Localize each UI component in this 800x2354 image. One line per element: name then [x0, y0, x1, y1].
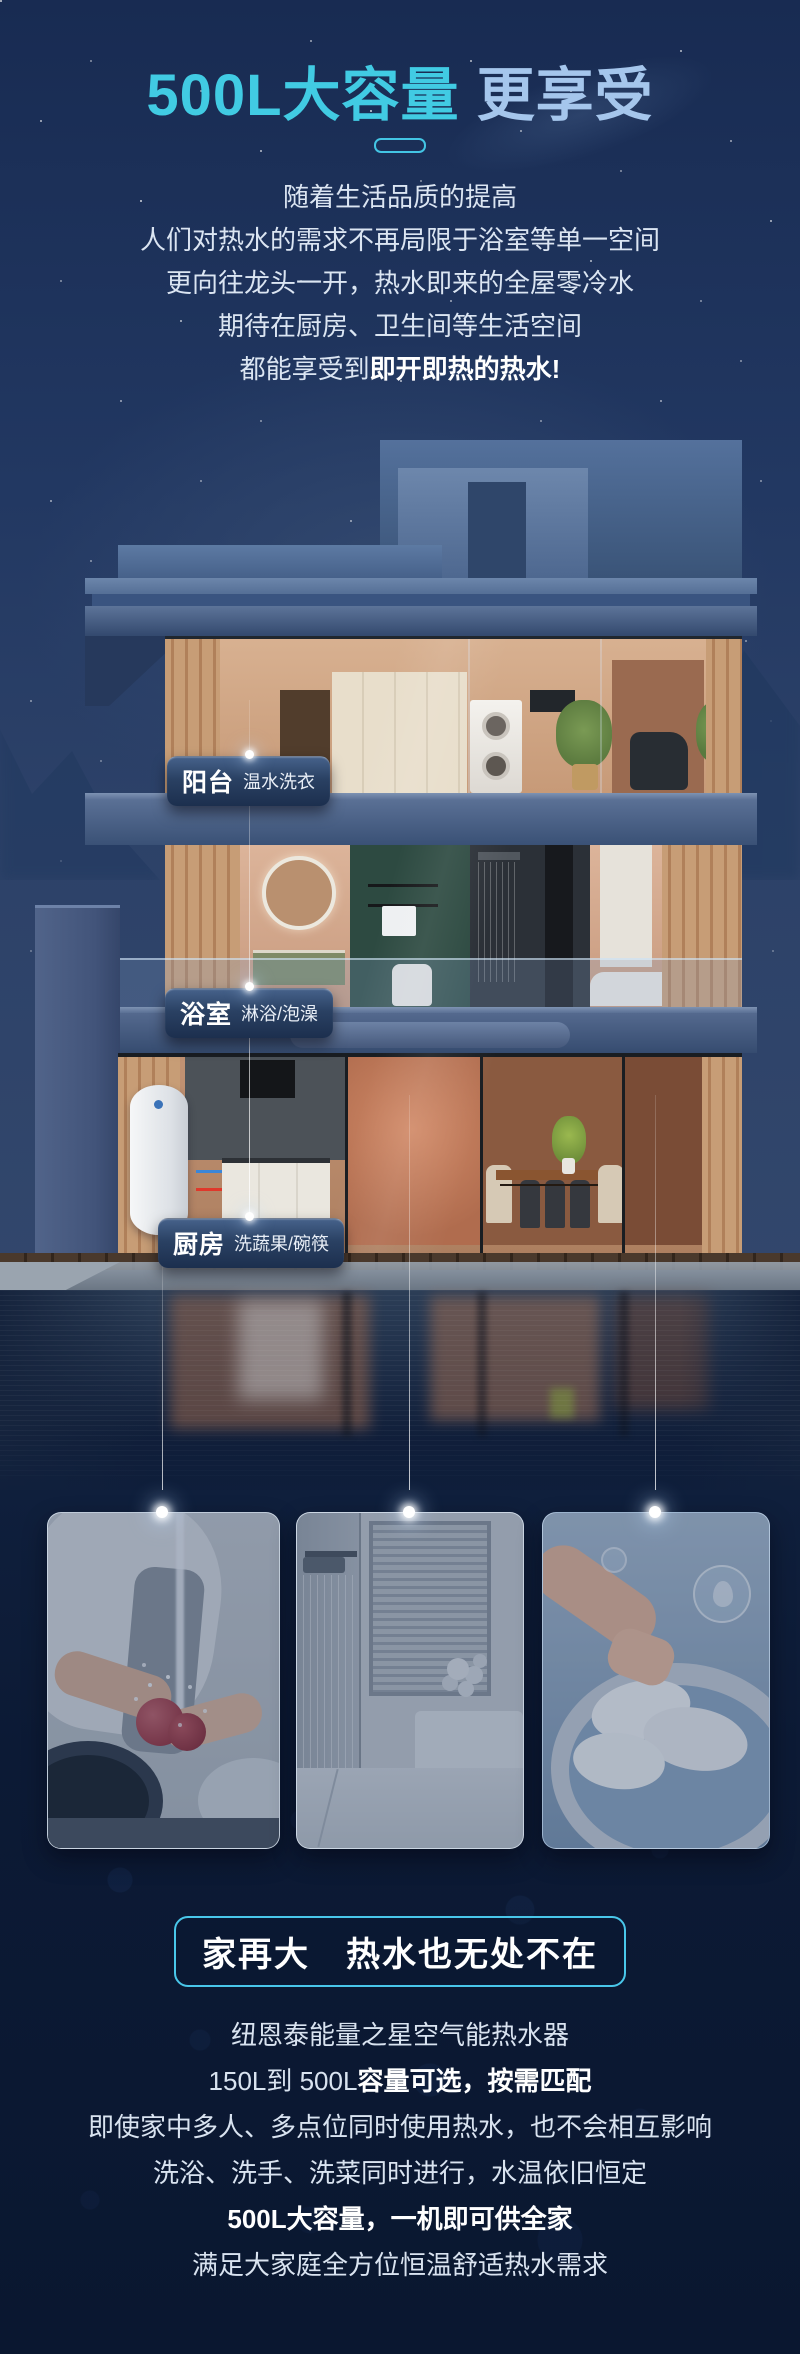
- card-tint: [297, 1513, 523, 1848]
- card1-connector-line: [162, 1262, 163, 1514]
- card-tint: [48, 1513, 279, 1848]
- title-highlight: 500L大容量: [146, 63, 459, 128]
- outro-line: 500L大容量，一机即可供全家: [0, 2196, 800, 2242]
- outro-line: 纽恩泰能量之星空气能热水器: [0, 2012, 800, 2058]
- title-rest: 更享受: [460, 63, 654, 128]
- roof-door: [468, 482, 526, 578]
- intro-line: 更向往龙头一开，热水即来的全屋零冷水: [0, 262, 800, 305]
- pool-coping: [0, 1262, 800, 1292]
- label-glow-dot: [245, 1212, 254, 1221]
- outro-title-box: 家再大 热水也无处不在: [174, 1916, 626, 1987]
- roof-cornice-fascia: [85, 606, 757, 636]
- label-bathroom-title: 浴室: [180, 995, 232, 1031]
- card-glow-dot: [649, 1506, 661, 1518]
- label-kitchen-subtitle: 洗蔬果/碗筷: [234, 1230, 329, 1256]
- outro-line: 150L到 500L容量可选，按需匹配: [0, 2058, 800, 2104]
- label-bathroom: 浴室 淋浴/泡澡: [165, 988, 333, 1038]
- intro-line: 随着生活品质的提高: [0, 176, 800, 219]
- outro-title: 家再大 热水也无处不在: [202, 1936, 598, 1974]
- card3-connector-line: [655, 1095, 656, 1514]
- divider-pill: [374, 138, 426, 153]
- label-bathroom-subtitle: 淋浴/泡澡: [241, 1000, 318, 1026]
- label-balcony-subtitle: 温水洗衣: [243, 768, 315, 794]
- intro-line: 都能享受到即开即热的热水!: [0, 348, 800, 391]
- promo-page: 500L大容量 更享受 随着生活品质的提高 人们对热水的需求不再局限于浴室等单一…: [0, 0, 800, 2354]
- card2-connector-line: [409, 1095, 410, 1514]
- card-glow-dot: [156, 1506, 168, 1518]
- outro-line: 洗浴、洗手、洗菜同时进行，水温依旧恒定: [0, 2150, 800, 2196]
- label-balcony-title: 阳台: [182, 763, 234, 799]
- label-glow-dot: [245, 750, 254, 759]
- photo-card-shower: [296, 1512, 524, 1849]
- photo-card-washing-vegetables: [47, 1512, 280, 1849]
- stars: [0, 0, 2, 2]
- card-glow-dot: [403, 1506, 415, 1518]
- balcony-slab: [85, 800, 757, 845]
- label-kitchen: 厨房 洗蔬果/碗筷: [158, 1218, 344, 1268]
- roof-cornice: [85, 578, 757, 594]
- label-balcony: 阳台 温水洗衣: [167, 756, 330, 806]
- intro-line: 人们对热水的需求不再局限于浴室等单一空间: [0, 219, 800, 262]
- card-tint: [543, 1513, 769, 1848]
- label-glow-dot: [245, 982, 254, 991]
- page-title: 500L大容量 更享受: [0, 48, 800, 132]
- floor3-frame-top: [165, 636, 742, 639]
- roof-cornice-recess: [92, 594, 750, 606]
- outro-line: 满足大家庭全方位恒温舒适热水需求: [0, 2242, 800, 2288]
- roof-parapet: [118, 545, 442, 578]
- outro-line: 即使家中多人、多点位同时使用热水，也不会相互影响: [0, 2104, 800, 2150]
- outro-paragraph: 纽恩泰能量之星空气能热水器 150L到 500L容量可选，按需匹配 即使家中多人…: [0, 2012, 800, 2288]
- intro-paragraph: 随着生活品质的提高 人们对热水的需求不再局限于浴室等单一空间 更向往龙头一开，热…: [0, 176, 800, 391]
- photo-card-laundry: [542, 1512, 770, 1849]
- intro-line: 期待在厨房、卫生间等生活空间: [0, 305, 800, 348]
- label-kitchen-title: 厨房: [173, 1225, 225, 1261]
- concrete-pillar: [35, 905, 120, 1271]
